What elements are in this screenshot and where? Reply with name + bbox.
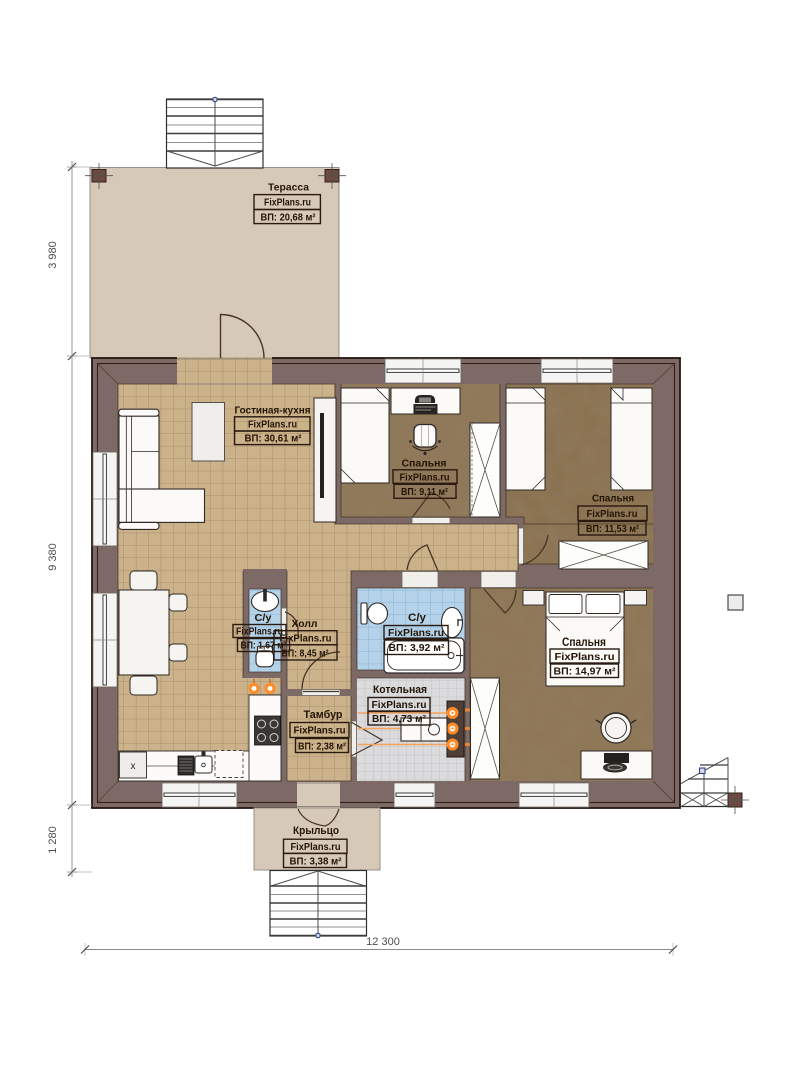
svg-text:ВП: 8,45 м²: ВП: 8,45 м²	[282, 648, 330, 659]
svg-text:С/у: С/у	[255, 612, 272, 624]
svg-text:FixPlans.ru: FixPlans.ru	[555, 652, 615, 663]
svg-text:Спальня: Спальня	[592, 493, 634, 505]
svg-text:Холл: Холл	[292, 618, 318, 630]
svg-text:ВП: 3,38 м²: ВП: 3,38 м²	[290, 856, 343, 867]
svg-text:x: x	[131, 761, 136, 772]
svg-text:FixPlans.ru: FixPlans.ru	[372, 700, 427, 711]
svg-text:ВП: 14,97 м²: ВП: 14,97 м²	[554, 667, 617, 678]
svg-text:1 280: 1 280	[47, 826, 59, 854]
svg-text:ВП: 11,53 м²: ВП: 11,53 м²	[586, 524, 640, 535]
svg-text:Котельная: Котельная	[373, 684, 427, 696]
svg-text:ВП: 4,73 м²: ВП: 4,73 м²	[372, 714, 427, 725]
svg-text:ВП: 30,61 м²: ВП: 30,61 м²	[245, 434, 303, 445]
svg-text:12 300: 12 300	[366, 936, 400, 948]
svg-text:FixPlans.ru: FixPlans.ru	[400, 472, 450, 483]
svg-text:Гостиная-кухня: Гостиная-кухня	[235, 405, 311, 417]
svg-text:Терасса: Терасса	[268, 182, 309, 194]
svg-text:FixPlans.ru: FixPlans.ru	[587, 509, 638, 520]
svg-text:FixPlans.ru: FixPlans.ru	[291, 842, 341, 853]
svg-text:ВП: 20,68 м²: ВП: 20,68 м²	[261, 212, 317, 223]
svg-text:FixPlans.ru: FixPlans.ru	[388, 628, 444, 639]
svg-text:FixPlans.ru: FixPlans.ru	[264, 198, 311, 209]
svg-text:FixPlans.ru: FixPlans.ru	[248, 420, 297, 431]
svg-text:ВП: 9,11 м²: ВП: 9,11 м²	[401, 487, 449, 498]
svg-text:С/у: С/у	[408, 612, 427, 624]
svg-text:Спальня: Спальня	[402, 458, 447, 470]
svg-text:Тамбур: Тамбур	[304, 709, 343, 721]
svg-text:9 380: 9 380	[47, 543, 59, 571]
svg-text:ВП: 1,67 м²: ВП: 1,67 м²	[241, 641, 288, 652]
svg-text:Крыльцо: Крыльцо	[293, 825, 339, 837]
svg-text:Спальня: Спальня	[562, 637, 606, 649]
svg-text:FixPlans.ru: FixPlans.ru	[294, 726, 346, 737]
svg-text:ВП: 2,38 м²: ВП: 2,38 м²	[298, 741, 347, 752]
svg-text:ВП: 3,92 м²: ВП: 3,92 м²	[389, 643, 446, 654]
svg-text:3 980: 3 980	[47, 241, 59, 269]
svg-text:FixPlans.ru: FixPlans.ru	[236, 627, 283, 638]
